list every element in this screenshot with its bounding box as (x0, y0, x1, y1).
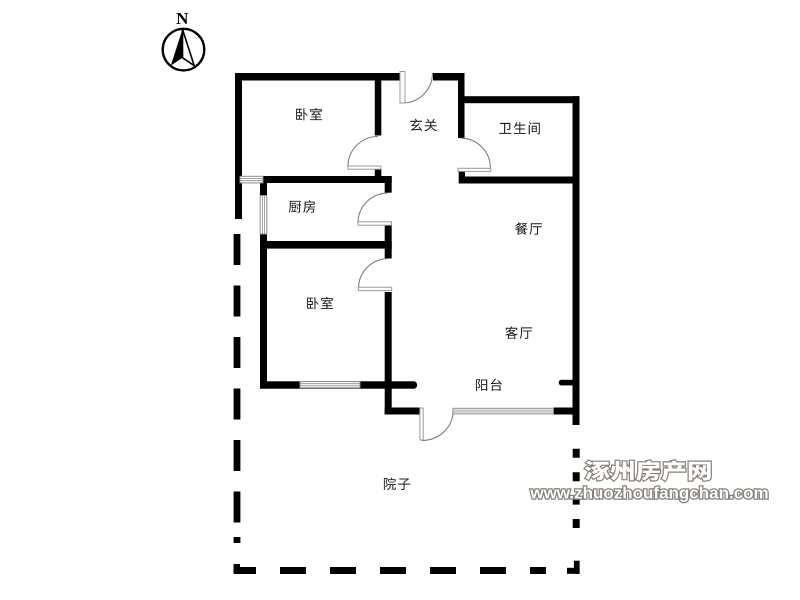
svg-text:N: N (176, 9, 189, 28)
svg-text:www.zhuozhoufangchan.com: www.zhuozhoufangchan.com (529, 484, 768, 503)
